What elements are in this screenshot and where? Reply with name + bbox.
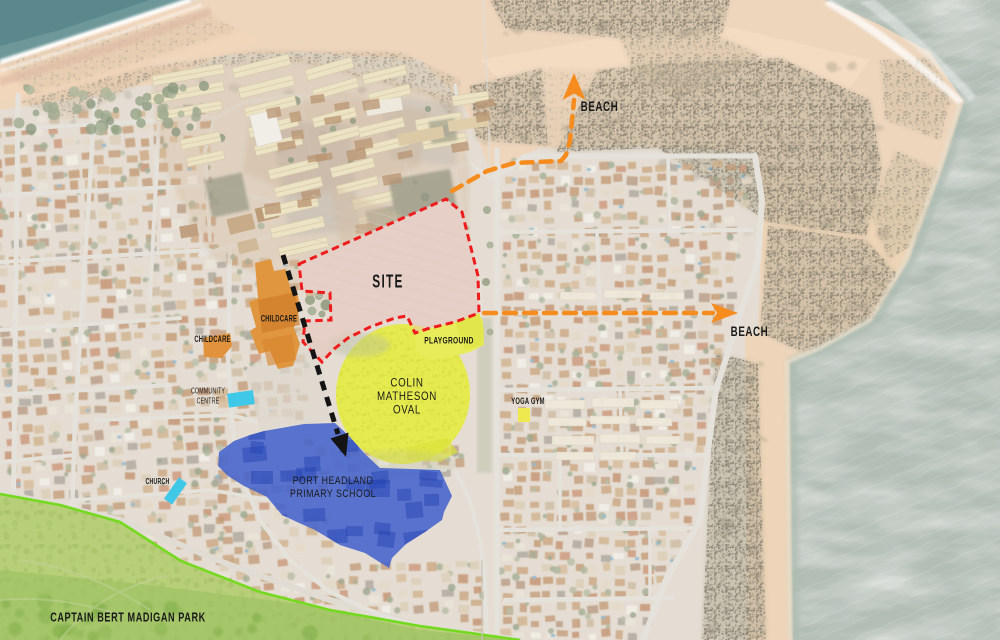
svg-text:CHILDCARE: CHILDCARE [194,334,230,345]
svg-text:CHURCH: CHURCH [146,478,170,486]
svg-text:BEACH: BEACH [731,323,769,339]
svg-text:PORT HEADLANDPRIMARY SCHOOL: PORT HEADLANDPRIMARY SCHOOL [290,475,376,500]
svg-text:BEACH: BEACH [581,98,619,114]
svg-text:CHILDCARE: CHILDCARE [261,313,297,324]
svg-text:PLAYGROUND: PLAYGROUND [424,335,473,345]
svg-text:CAPTAIN BERT MADIGAN PARK: CAPTAIN BERT MADIGAN PARK [50,611,206,625]
svg-text:SITE: SITE [372,272,403,292]
svg-text:YOGA GYM: YOGA GYM [511,396,544,407]
